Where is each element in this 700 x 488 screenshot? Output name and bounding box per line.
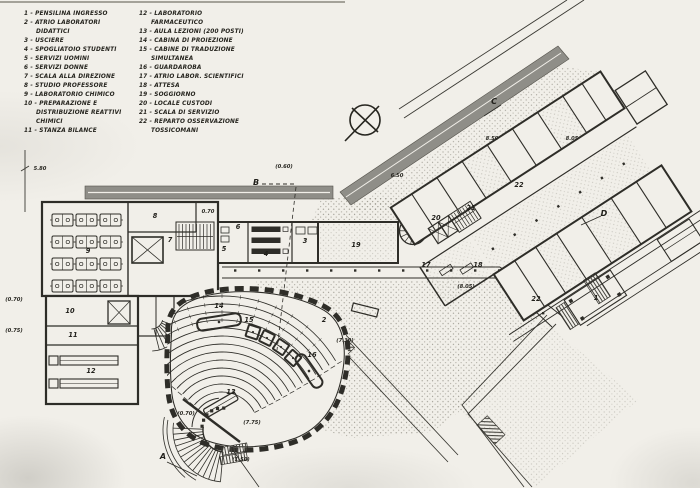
room-label-8: 8 [153, 212, 158, 220]
room-label-2: 2 [322, 316, 327, 324]
legend-item-11: 11 - Stanza bilance [24, 127, 131, 136]
elevation-label: (0.70) [177, 411, 195, 417]
elevation-label: (8.05) [457, 284, 475, 290]
legend-item-10: 10 - Preparazione e distribuzione reatti… [24, 100, 131, 127]
room-label-18: 18 [473, 261, 483, 269]
legend-item-1: 1 - Pensilina ingresso [24, 10, 131, 19]
legend-item-9: 9 - Laboratorio chimico [24, 91, 131, 100]
legend-item-18: 18 - Attesa [139, 82, 246, 91]
legend-item-16: 16 - Guardaroba [139, 64, 246, 73]
room-label-22: 22 [531, 295, 541, 303]
legend-item-4: 4 - Spogliatoio studenti [24, 46, 131, 55]
legend-item-15: 15 - Cabine di traduzione simultanea [139, 46, 246, 64]
elevation-label: 6.50 [391, 173, 404, 179]
legend-item-6: 6 - Servizi donne [24, 64, 131, 73]
room-label-4: 4 [264, 250, 269, 258]
legend-item-2: 2 - Atrio laboratori didattici [24, 19, 131, 37]
room-label-5: 5 [222, 245, 227, 253]
scanned-floor-plan-sheet: 1234567891011121314151617181920212222 5.… [0, 0, 700, 488]
legend-item-19: 19 - Soggiorno [139, 91, 246, 100]
property-line [21, 150, 29, 212]
legend-item-20: 20 - Locale custodi [139, 100, 246, 109]
room-label-1: 1 [594, 294, 599, 302]
legend-item-8: 8 - Studio professore [24, 82, 131, 91]
legend: 1 - Pensilina ingresso2 - Atrio laborato… [24, 10, 246, 136]
elevation-label: 8.05 [566, 136, 579, 142]
room-label-14: 14 [214, 302, 224, 310]
elevation-label: 5.80 [34, 166, 47, 172]
legend-item-17: 17 - Atrio labor. scientifici [139, 73, 246, 82]
legend-item-7: 7 - Scala alla direzione [24, 73, 131, 82]
room-label-15: 15 [244, 316, 254, 324]
legend-item-21: 21 - Scala di servizio [139, 109, 246, 118]
elevation-label: (0.75) [5, 328, 23, 334]
room-label-22: 22 [514, 181, 524, 189]
legend-item-14: 14 - Cabina di proiezione [139, 37, 246, 46]
room-label-7: 7 [168, 236, 173, 244]
elevation-label: (1.50) [232, 457, 250, 463]
legend-item-12: 12 - Laboratorio farmaceutico [139, 10, 246, 28]
room-label-17: 17 [421, 261, 431, 269]
elevation-label: (0.60) [275, 164, 293, 170]
legend-item-5: 5 - Servizi uomini [24, 55, 131, 64]
section-label-C: C [491, 97, 497, 106]
elevation-label: 0.70 [202, 209, 215, 215]
elevation-label: (0.70) [5, 297, 23, 303]
room-label-11: 11 [68, 331, 77, 339]
room-label-9: 9 [86, 247, 91, 255]
elevation-label: (7.30) [336, 338, 354, 344]
room-label-10: 10 [65, 307, 75, 315]
room-label-13: 13 [226, 388, 236, 396]
section-label-A: A [159, 452, 166, 461]
elevation-label: (7.75) [243, 420, 261, 426]
room-label-19: 19 [351, 241, 361, 249]
room-label-12: 12 [86, 367, 96, 375]
elevation-label: 8.50 [486, 136, 499, 142]
room-label-3: 3 [303, 237, 308, 245]
room-label-6: 6 [236, 223, 241, 231]
legend-item-13: 13 - Aula lezioni (200 posti) [139, 28, 246, 37]
legend-column-1: 1 - Pensilina ingresso2 - Atrio laborato… [24, 10, 131, 136]
room-label-16: 16 [307, 351, 317, 359]
legend-item-3: 3 - Usciere [24, 37, 131, 46]
room-label-21: 21 [466, 204, 475, 212]
section-label-D: D [601, 209, 608, 218]
legend-column-2: 12 - Laboratorio farmaceutico13 - Aula l… [139, 10, 246, 136]
room-label-20: 20 [431, 214, 441, 222]
section-label-B: B [253, 178, 259, 187]
north-symbol [345, 105, 380, 141]
legend-item-22: 22 - Reparto osservazione tossicomani [139, 118, 246, 136]
